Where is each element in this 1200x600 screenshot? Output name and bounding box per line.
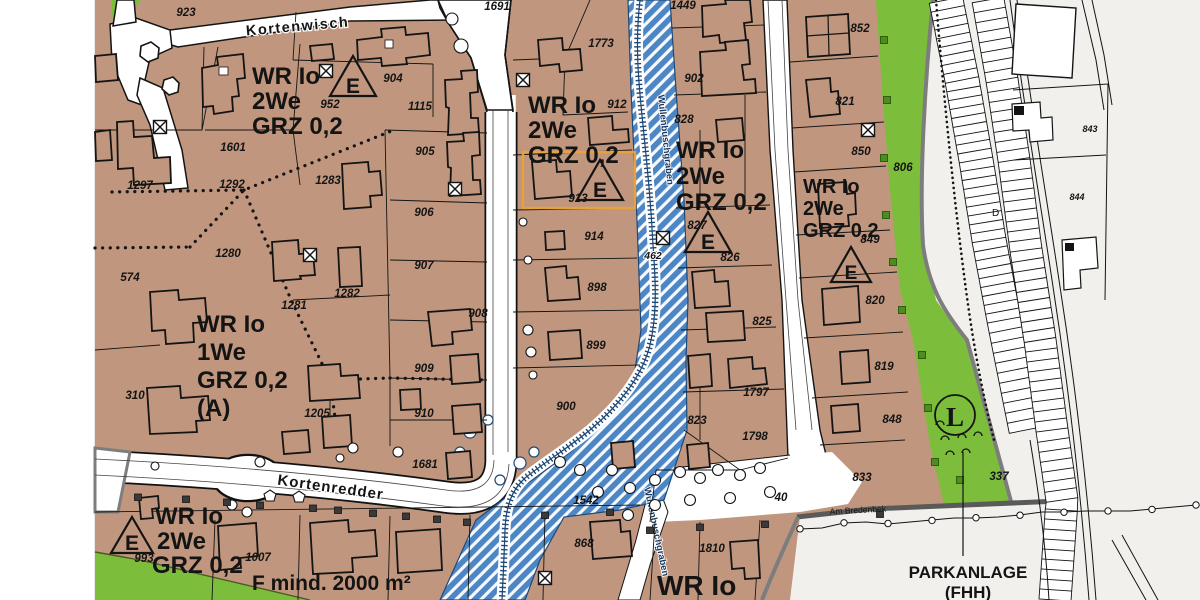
- svg-text:913: 913: [568, 193, 588, 205]
- svg-text:310: 310: [125, 390, 145, 402]
- svg-text:1280: 1280: [215, 248, 241, 260]
- svg-text:898: 898: [587, 282, 607, 294]
- svg-text:2We: 2We: [252, 88, 301, 115]
- svg-text:912: 912: [607, 99, 627, 111]
- svg-text:1297: 1297: [127, 180, 153, 192]
- svg-text:904: 904: [383, 73, 403, 85]
- svg-text:(A): (A): [197, 395, 230, 422]
- svg-text:462: 462: [643, 250, 662, 262]
- svg-text:WR Io: WR Io: [252, 63, 320, 90]
- svg-text:1810: 1810: [699, 543, 725, 555]
- svg-text:WR Io: WR Io: [803, 176, 860, 198]
- svg-text:L: L: [946, 402, 964, 432]
- svg-text:337: 337: [989, 471, 1009, 483]
- svg-text:923: 923: [176, 7, 196, 19]
- svg-text:1681: 1681: [412, 459, 438, 471]
- svg-text:907: 907: [414, 260, 434, 272]
- svg-text:852: 852: [850, 23, 870, 35]
- svg-text:806: 806: [893, 162, 913, 174]
- svg-text:1282: 1282: [334, 288, 360, 300]
- svg-text:902: 902: [684, 73, 704, 85]
- svg-text:828: 828: [674, 114, 694, 126]
- svg-text:D: D: [992, 208, 999, 219]
- svg-text:820: 820: [865, 295, 885, 307]
- svg-text:849: 849: [860, 234, 880, 246]
- svg-text:993: 993: [134, 553, 154, 565]
- svg-text:848: 848: [882, 414, 902, 426]
- svg-text:909: 909: [414, 363, 434, 375]
- svg-text:1691: 1691: [484, 1, 510, 13]
- svg-text:833: 833: [852, 472, 872, 484]
- svg-text:E: E: [701, 231, 715, 254]
- svg-text:40: 40: [774, 492, 788, 504]
- svg-text:908: 908: [468, 308, 488, 320]
- svg-text:GRZ 0,2: GRZ 0,2: [152, 552, 243, 579]
- svg-text:821: 821: [835, 96, 854, 108]
- svg-text:E: E: [346, 75, 360, 98]
- svg-text:2We: 2We: [803, 198, 844, 220]
- svg-text:E: E: [125, 532, 139, 555]
- svg-text:E: E: [845, 263, 858, 284]
- svg-text:1797: 1797: [743, 387, 769, 399]
- svg-text:827: 827: [687, 220, 707, 232]
- svg-text:WR Io: WR Io: [528, 92, 596, 119]
- svg-text:850: 850: [851, 146, 871, 158]
- svg-text:574: 574: [120, 272, 140, 284]
- svg-text:GRZ 0,2: GRZ 0,2: [252, 113, 343, 140]
- svg-text:910: 910: [414, 408, 434, 420]
- svg-text:1205: 1205: [304, 408, 330, 420]
- svg-text:1449: 1449: [670, 0, 696, 12]
- svg-text:1007: 1007: [245, 552, 271, 564]
- svg-text:825: 825: [752, 316, 772, 328]
- svg-text:819: 819: [874, 361, 894, 373]
- svg-text:E: E: [593, 179, 607, 202]
- svg-text:952: 952: [320, 99, 340, 111]
- svg-text:2We: 2We: [157, 528, 206, 555]
- svg-text:1292: 1292: [219, 179, 245, 191]
- svg-text:GRZ 0,2: GRZ 0,2: [528, 142, 619, 169]
- svg-text:906: 906: [414, 207, 434, 219]
- svg-text:844: 844: [1069, 192, 1084, 202]
- svg-text:GRZ 0,2: GRZ 0,2: [197, 367, 288, 394]
- svg-text:905: 905: [415, 146, 435, 158]
- svg-text:1542: 1542: [573, 495, 599, 507]
- svg-text:1283: 1283: [315, 175, 341, 187]
- svg-text:900: 900: [556, 401, 576, 413]
- svg-text:F mind. 2000 m²: F mind. 2000 m²: [252, 572, 411, 595]
- svg-text:826: 826: [720, 252, 740, 264]
- svg-text:1115: 1115: [408, 101, 432, 113]
- svg-text:2We: 2We: [676, 163, 725, 190]
- svg-text:914: 914: [584, 231, 604, 243]
- svg-text:899: 899: [586, 340, 606, 352]
- svg-text:1601: 1601: [220, 142, 246, 154]
- svg-text:1281: 1281: [281, 300, 307, 312]
- svg-text:868: 868: [574, 538, 594, 550]
- svg-text:WR Io: WR Io: [155, 503, 223, 530]
- svg-text:PARKANLAGE: PARKANLAGE: [909, 563, 1028, 582]
- svg-text:843: 843: [1082, 124, 1097, 134]
- svg-text:2We: 2We: [528, 117, 577, 144]
- svg-text:823: 823: [687, 415, 707, 427]
- svg-text:WR Io: WR Io: [197, 311, 265, 338]
- svg-text:WR Io: WR Io: [657, 570, 736, 600]
- svg-text:(FHH): (FHH): [945, 583, 991, 600]
- svg-text:1798: 1798: [742, 431, 768, 443]
- svg-text:1We: 1We: [197, 339, 246, 366]
- svg-text:GRZ 0,2: GRZ 0,2: [676, 189, 767, 216]
- svg-text:1773: 1773: [588, 38, 614, 50]
- svg-text:WR Io: WR Io: [676, 137, 744, 164]
